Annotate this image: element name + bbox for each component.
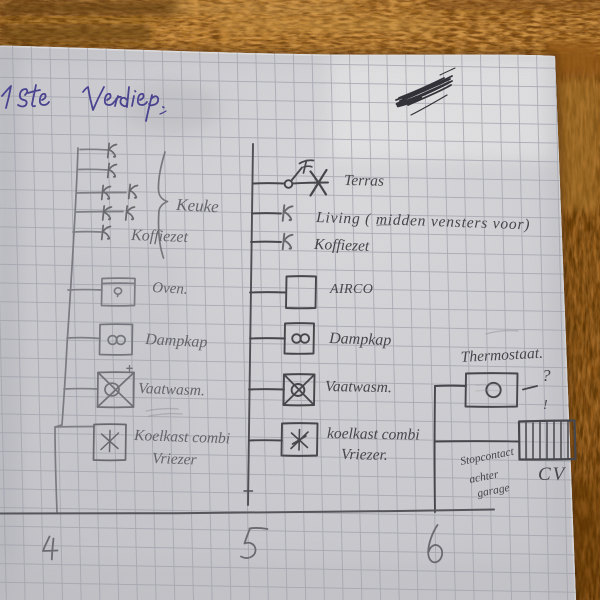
svg-text:Vriezer: Vriezer: [152, 450, 198, 469]
svg-text:Terras: Terras: [344, 172, 384, 190]
svg-text:Dampkap: Dampkap: [144, 331, 208, 351]
svg-text:Vaatwasm.: Vaatwasm.: [325, 378, 392, 396]
svg-text:CV: CV: [538, 464, 567, 485]
svg-text:Koffiezet: Koffiezet: [313, 236, 370, 255]
svg-text:Vriezer.: Vriezer.: [341, 446, 388, 464]
svg-text:!: !: [543, 398, 548, 413]
svg-text:?: ?: [542, 366, 551, 385]
svg-text:Oven.: Oven.: [152, 280, 188, 298]
svg-text:koelkast combi: koelkast combi: [327, 425, 420, 444]
svg-text:Dampkap: Dampkap: [328, 330, 392, 349]
svg-text:Keuke: Keuke: [175, 195, 220, 216]
svg-text:Koelkast combi: Koelkast combi: [133, 427, 231, 447]
svg-text:AIRCO: AIRCO: [329, 282, 373, 297]
svg-text:Vaatwasm.: Vaatwasm.: [138, 380, 205, 399]
svg-text:Koffiezet: Koffiezet: [130, 227, 189, 246]
